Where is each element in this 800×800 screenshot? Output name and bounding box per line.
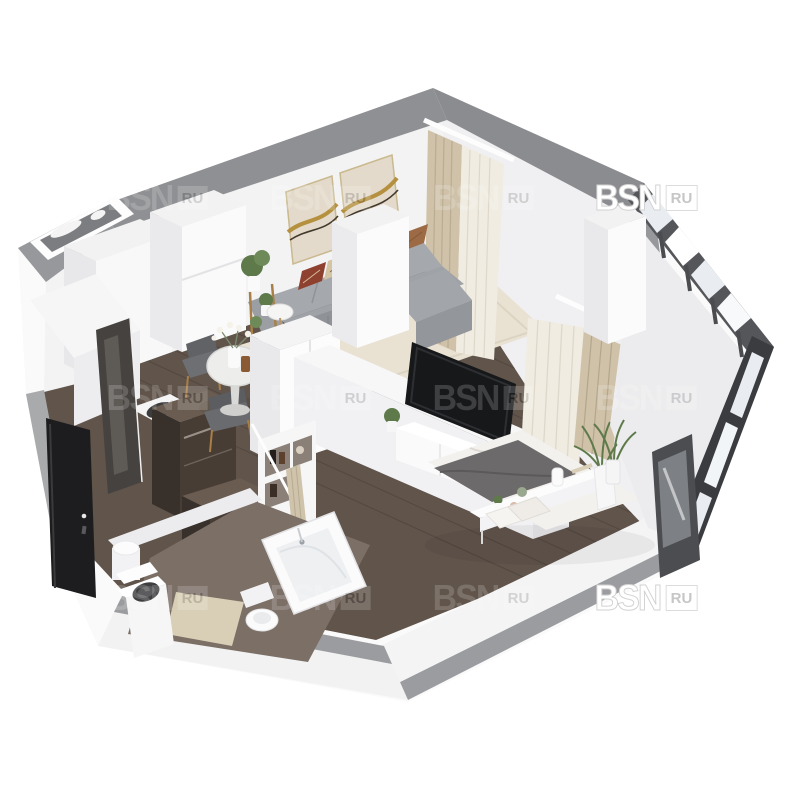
fridge-side: [150, 212, 182, 352]
floorplan-render: BSNRUBSNRUBSNRUBSNRUBSNRUBSNRUBSNRUBSNRU…: [0, 0, 800, 800]
balcony-cabinet-front: [608, 216, 646, 344]
table-base: [220, 404, 250, 416]
sage-vase: [517, 487, 527, 497]
door-handle: [82, 514, 87, 519]
plant-foliage: [254, 250, 270, 266]
tall-wardrobe-front: [357, 216, 409, 348]
dark-cabinet-side: [152, 408, 180, 518]
brown-vase: [241, 356, 250, 372]
apartment-3d-render: [0, 0, 800, 800]
side-table-top: [267, 304, 293, 320]
bed-shadow: [425, 525, 655, 565]
bottle: [270, 484, 277, 497]
sink-bowl: [113, 541, 139, 555]
balcony-cabinet-side: [584, 218, 608, 344]
plant-pot: [248, 276, 260, 291]
flower-vase: [228, 346, 240, 368]
fridge-front: [182, 205, 246, 352]
tv-plant-pot: [387, 421, 397, 432]
plant-foliage: [259, 293, 273, 307]
white-vase: [552, 468, 563, 486]
toilet-seat: [253, 612, 271, 624]
tall-wardrobe-side: [332, 222, 357, 348]
bottle: [279, 452, 285, 464]
jar: [296, 446, 304, 454]
plant-foliage: [250, 316, 262, 328]
balcony-plant-pot: [606, 460, 620, 484]
